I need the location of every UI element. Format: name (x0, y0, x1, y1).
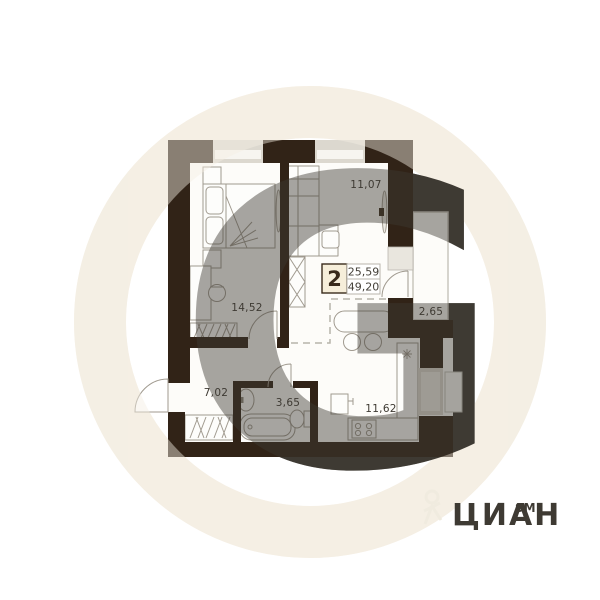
stove-burner-4 (366, 430, 371, 435)
pillow-1 (206, 187, 223, 214)
stove (352, 420, 376, 438)
toilet-bowl (290, 410, 304, 428)
hallway-furniture (185, 415, 233, 440)
dining-chair-1 (344, 334, 361, 351)
kitchen-sink-icon (402, 349, 412, 359)
wall-right-upper (388, 140, 413, 247)
label-bathroom-area: 3,65 (276, 397, 301, 409)
badge-total-area: 49,20 (348, 281, 380, 294)
wall-bath-top-left (233, 381, 273, 388)
washer (331, 394, 348, 414)
stove-burner-2 (366, 423, 371, 428)
wall-bedroom-bottom-left (168, 337, 248, 348)
window-kitchen-inner (421, 372, 440, 411)
brand-word: ЦИАН (452, 498, 561, 533)
shelving-unit (289, 257, 305, 307)
wall-balcony-bottom (388, 320, 453, 338)
floorplan-svg: G (0, 0, 600, 600)
stove-burner-1 (355, 423, 360, 428)
label-kitchen-area: 11,62 (365, 403, 397, 415)
entrance-door-arc (135, 379, 168, 412)
sill-living-right (388, 247, 413, 270)
label-hallway-area: 7,02 (204, 387, 229, 399)
window-kitchen-outer-sill (445, 372, 462, 412)
floorplan-image: G (0, 0, 600, 600)
desk (190, 266, 211, 320)
nightstand-bottom (203, 250, 221, 268)
wall-bath-right (310, 381, 318, 442)
balcony-outline (413, 212, 448, 320)
wall-kitchen-right-lower (419, 416, 453, 456)
pillow-2 (206, 217, 223, 244)
nightstand-top (203, 167, 221, 184)
dining-table (334, 311, 394, 332)
stove-burner-3 (355, 430, 360, 435)
side-table (322, 231, 339, 248)
wall-bedroom-living (280, 163, 289, 337)
living-tv-mount (379, 208, 384, 216)
badge-rooms-count: 2 (327, 267, 342, 291)
wall-kitchen-right-upper (420, 338, 443, 368)
wall-bottom (168, 442, 453, 457)
wall-bedroom-bottom-right (277, 337, 289, 348)
apartment-badge: 2 25,59 49,20 (322, 264, 380, 294)
wall-balcony-left (388, 298, 413, 322)
toilet-tank (304, 411, 311, 427)
wall-bath-left (233, 381, 241, 442)
label-living-area: 11,07 (350, 179, 382, 191)
brand-sm-mark: SM (515, 501, 536, 515)
window-bedroom-inner (215, 150, 261, 159)
badge-living-area: 25,59 (348, 266, 380, 279)
label-balcony-area: 2,65 (419, 306, 444, 318)
window-living-inner (317, 150, 363, 159)
bathtub-drain (248, 425, 252, 429)
dining-chair-2 (365, 334, 382, 351)
label-bedroom-area: 14,52 (231, 302, 263, 314)
wall-top (168, 140, 413, 163)
